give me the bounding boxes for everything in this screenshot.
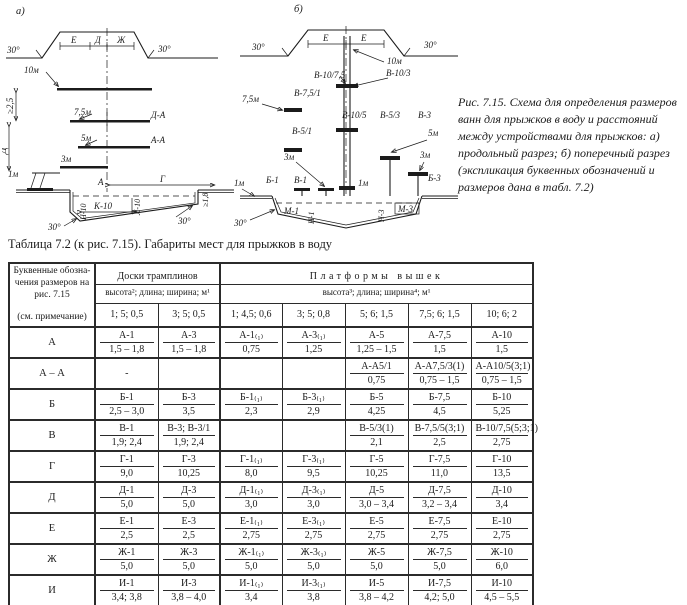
cell-designation: Г-7,5 (413, 452, 467, 467)
header-group-platforms: Платформы вышек высота³; длина; ширина⁴;… (220, 263, 533, 304)
dim-1m-label: 1м (234, 178, 245, 188)
table-cell: И-13,4; 3,8 (95, 575, 158, 605)
cell-designation: Ж-10 (476, 545, 529, 560)
table-cell: И-104,5 – 5,5 (471, 575, 533, 605)
table-cell: Ж-35,0 (158, 544, 220, 575)
table-cell: А-101,5 (471, 327, 533, 358)
figure-a-tag: а) (16, 6, 25, 17)
cell-value: 1,25 – 1,5 (346, 343, 408, 357)
cell-value: 5,0 (96, 560, 158, 574)
cell-value: 3,4 (472, 498, 533, 512)
size-col: 1; 4,5; 0,6 (220, 304, 282, 327)
cell-designation: А-10 (476, 328, 529, 343)
cell-designation: Б-3₍₁₎ (287, 390, 341, 405)
segment-e-label: Е (70, 35, 77, 45)
angle-label: 30° (233, 218, 247, 228)
cell-designation: И-7,5 (413, 576, 467, 591)
cell-designation: А-А5/1 (350, 359, 404, 374)
table-cell: Д-53,0 – 3,4 (345, 482, 408, 513)
cell-value: 5,0 (96, 498, 158, 512)
dim-1-8-label: ≥1,8 (201, 193, 210, 207)
scanned-page: а) 30° 30° Е Д Ж 10м ≥2,5 7,5м Д-А Д (0, 0, 687, 605)
cell-designation: А-7,5 (413, 328, 467, 343)
table-cell (220, 358, 282, 389)
cell-value: 2,1 (346, 436, 408, 450)
table-row: ВВ-11,9; 2,4В-3; В-3/11,9; 2,4В-5/3(1)2,… (9, 420, 533, 451)
angle-label: 30° (251, 42, 265, 52)
table-title: Таблица 7.2 (к рис. 7.15). Габариты мест… (8, 237, 332, 252)
cell-designation: Б-7,5 (413, 390, 467, 405)
table-cell: В-11,9; 2,4 (95, 420, 158, 451)
table-row: А – А-А-А5/10,75А-А7,5/3(1)0,75 – 1,5А-А… (9, 358, 533, 389)
table-cell (158, 358, 220, 389)
angle-label: 30° (6, 45, 20, 55)
cell-designation: Д-1₍₁₎ (225, 483, 278, 498)
cell-designation: Ж-3 (163, 545, 216, 560)
table-cell: Г-510,25 (345, 451, 408, 482)
cell-value: 9,0 (96, 467, 158, 481)
mark-n1-label: Н-1 (307, 212, 316, 225)
size-col: 1; 5; 0,5 (95, 304, 158, 327)
segment-zh-label: Ж (116, 35, 126, 45)
table-cell: Б-54,25 (345, 389, 408, 420)
cell-value: 2,75 (283, 529, 345, 543)
cell-value: 2,75 (346, 529, 408, 543)
cell-value: 4,5 (409, 405, 471, 419)
table-cell: В-5/3(1)2,1 (345, 420, 408, 451)
row-letter: Д (9, 482, 95, 513)
figure-b-drawing: б) 30° 30° Е Е 10м В-10/7,5 В-10/3 7 (232, 0, 467, 234)
cell-value: 3,8 (283, 591, 345, 605)
cell-designation: Е-10 (476, 514, 529, 529)
cell-value: 1,5 – 1,8 (96, 343, 158, 357)
cell-designation: В-3; В-3/1 (163, 421, 216, 436)
cell-value: 5,0 (346, 560, 408, 574)
group-springboards-title: Доски трамплинов (96, 268, 219, 285)
cell-value: 4,2; 5,0 (409, 591, 471, 605)
table-cell: Д-15,0 (95, 482, 158, 513)
dim-3m-label: 3м (283, 152, 295, 162)
cell-value: 13,5 (472, 467, 533, 481)
size-col: 3; 5; 0,5 (158, 304, 220, 327)
cell-designation: В-10/7,5(5;3;1) (476, 421, 529, 436)
cell-designation: Б-5 (350, 390, 404, 405)
cell-designation: Ж-1 (100, 545, 154, 560)
cell-designation: А-1₍₁₎ (225, 328, 278, 343)
table-cell: И-1₍₁₎3,4 (220, 575, 282, 605)
segment-e-label: Е (360, 33, 367, 43)
table-cell: Г-3₍₁₎9,5 (282, 451, 345, 482)
table-7-2: Буквенные обозна-чения размеров на рис. … (8, 262, 534, 605)
cell-designation: Д-7,5 (413, 483, 467, 498)
cell-value: 0,75 – 1,5 (409, 374, 471, 388)
dim-1m-label: 1м (8, 169, 19, 179)
dim-2-5-label: ≥2,5 (5, 97, 15, 114)
cell-value: 2,75 (409, 529, 471, 543)
mark-v10-75-label: В-10/7,5 (314, 70, 346, 80)
figure-caption: Рис. 7.15. Схема для определения размеро… (458, 94, 685, 196)
cell-value: 2,5 (96, 529, 158, 543)
cell-designation: Ж-1₍₁₎ (225, 545, 278, 560)
table-cell: Б-33,5 (158, 389, 220, 420)
cell-value: 11,0 (409, 467, 471, 481)
cell-value: 9,5 (283, 467, 345, 481)
header-designation: Буквенные обозна-чения размеров на рис. … (9, 263, 95, 327)
table-cell: Д-7,53,2 – 3,4 (408, 482, 471, 513)
row-letter: Б (9, 389, 95, 420)
table-cell: Б-3₍₁₎2,9 (282, 389, 345, 420)
cell-designation: А-3₍₁₎ (287, 328, 341, 343)
table-cell: Б-1₍₁₎2,3 (220, 389, 282, 420)
table-cell: Е-52,75 (345, 513, 408, 544)
table-cell: А-А5/10,75 (345, 358, 408, 389)
table-row: ДД-15,0Д-35,0Д-1₍₁₎3,0Д-3₍₁₎3,0Д-53,0 – … (9, 482, 533, 513)
table-row: ГГ-19,0Г-310,25Г-1₍₁₎8,0Г-3₍₁₎9,5Г-510,2… (9, 451, 533, 482)
cell-designation: Е-1 (100, 514, 154, 529)
table-cell: И-33,8 – 4,0 (158, 575, 220, 605)
table-cell: Д-1₍₁₎3,0 (220, 482, 282, 513)
mark-v10-5-label: В-10/5 (342, 110, 367, 120)
table-cell: В-10/7,5(5;3;1)2,75 (471, 420, 533, 451)
row-letter: А (9, 327, 95, 358)
dim-3m-label: 3м (60, 154, 72, 164)
cell-designation: Д-10 (476, 483, 529, 498)
table-cell: И-53,8 – 4,2 (345, 575, 408, 605)
cell-value: 4,25 (346, 405, 408, 419)
table-cell (220, 420, 282, 451)
row-letter: В (9, 420, 95, 451)
group-platforms-subtitle: высота³; длина; ширина⁴; м¹ (221, 285, 532, 300)
table-cell: Ж-15,0 (95, 544, 158, 575)
cell-value: 5,0 (221, 560, 282, 574)
table-cell: А-3₍₁₎1,25 (282, 327, 345, 358)
mark-n10-label: Н-10 (79, 204, 88, 221)
cell-designation: Г-10 (476, 452, 529, 467)
cell-designation: Д-5 (350, 483, 404, 498)
cell-value: 6,0 (472, 560, 533, 574)
size-col: 3; 5; 0,8 (282, 304, 345, 327)
figure-b-tag: б) (294, 4, 303, 15)
dim-10m-label: 10м (387, 56, 402, 66)
table-cell: Г-19,0 (95, 451, 158, 482)
table-row: ИИ-13,4; 3,8И-33,8 – 4,0И-1₍₁₎3,4И-3₍₁₎3… (9, 575, 533, 605)
cell-designation: Б-3 (163, 390, 216, 405)
table-cell: Г-7,511,0 (408, 451, 471, 482)
table-cell: Б-105,25 (471, 389, 533, 420)
row-letter: Г (9, 451, 95, 482)
cell-value: 3,0 – 3,4 (346, 498, 408, 512)
mark-l10-label: Л-10 (133, 199, 142, 216)
cell-value: 3,2 – 3,4 (409, 498, 471, 512)
cell-designation: И-3 (163, 576, 216, 591)
cell-designation: Ж-3₍₁₎ (287, 545, 341, 560)
cell-designation: Е-3 (163, 514, 216, 529)
cell-value: 3,8 – 4,2 (346, 591, 408, 605)
cell-value: 0,75 (346, 374, 408, 388)
mark-aa-label: А-А (150, 135, 165, 145)
cell-designation: Б-10 (476, 390, 529, 405)
cell-designation: И-10 (476, 576, 529, 591)
cell-designation: А-5 (350, 328, 404, 343)
angle-label: 30° (47, 222, 61, 232)
cell-designation: И-1₍₁₎ (225, 576, 278, 591)
cell-value: 8,0 (221, 467, 282, 481)
mark-b3-label: Б-3 (427, 173, 441, 183)
table-cell: В-7,5/5(3;1)2,5 (408, 420, 471, 451)
cell-value: 1,5 (472, 343, 533, 357)
table-cell: А-51,25 – 1,5 (345, 327, 408, 358)
cell-value: 3,4; 3,8 (96, 591, 158, 605)
cell-designation: Е-7,5 (413, 514, 467, 529)
table-cell: А-11,5 – 1,8 (95, 327, 158, 358)
angle-label: 30° (157, 44, 171, 54)
table-cell: Г-310,25 (158, 451, 220, 482)
table-row: ЕЕ-12,5Е-32,5Е-1₍₁₎2,75Е-3₍₁₎2,75Е-52,75… (9, 513, 533, 544)
table-cell: Е-3₍₁₎2,75 (282, 513, 345, 544)
cell-value: 2,9 (283, 405, 345, 419)
ceiling-profile (6, 32, 218, 58)
segment-e-label: Е (322, 33, 329, 43)
cell-value: 2,75 (472, 529, 533, 543)
table-cell: Г-1₍₁₎8,0 (220, 451, 282, 482)
cell-designation: Г-5 (350, 452, 404, 467)
table-cell: Ж-55,0 (345, 544, 408, 575)
table-cell: А-А7,5/3(1)0,75 – 1,5 (408, 358, 471, 389)
cell-value: 0,75 – 1,5 (472, 374, 533, 388)
dim-5m-label: 5м (81, 133, 92, 143)
cell-value: 5,0 (159, 498, 220, 512)
cell-designation: И-3₍₁₎ (287, 576, 341, 591)
cell-designation: И-5 (350, 576, 404, 591)
header-group-springboards: Доски трамплинов высота²; длина; ширина;… (95, 263, 220, 304)
mark-v7-5-1-label: В-7,5/1 (294, 88, 321, 98)
cell-value: 5,0 (159, 560, 220, 574)
cell-designation: А-3 (163, 328, 216, 343)
cell-designation: А-1 (100, 328, 154, 343)
cell-value: 10,25 (346, 467, 408, 481)
table-cell: Б-12,5 – 3,0 (95, 389, 158, 420)
table-cell: Е-7,52,75 (408, 513, 471, 544)
segment-d-label: Д (94, 35, 102, 45)
cell-value: - (96, 363, 158, 384)
cell-designation: В-5/3(1) (350, 421, 404, 436)
cell-value: 2,5 (159, 529, 220, 543)
cell-value: 1,25 (283, 343, 345, 357)
row-letter: Е (9, 513, 95, 544)
table-cell: Е-32,5 (158, 513, 220, 544)
cell-value: 2,3 (221, 405, 282, 419)
mark-k10-label: К-10 (93, 201, 112, 211)
cell-value: 10,25 (159, 467, 220, 481)
table-cell: Ж-1₍₁₎5,0 (220, 544, 282, 575)
group-platforms-title: Платформы вышек (221, 268, 532, 285)
mark-v5-1-label: В-5/1 (292, 126, 312, 136)
table-cell: А-А10/5(3;1)0,75 – 1,5 (471, 358, 533, 389)
mark-b1-label: Б-1 (265, 175, 279, 185)
cell-value: 4,5 – 5,5 (472, 591, 533, 605)
cell-value: 3,8 – 4,0 (159, 591, 220, 605)
cell-value: 1,5 – 1,8 (159, 343, 220, 357)
row-letter: И (9, 575, 95, 605)
table-cell: В-3; В-3/11,9; 2,4 (158, 420, 220, 451)
cell-designation: Г-3 (163, 452, 216, 467)
cell-value: 1,9; 2,4 (159, 436, 220, 450)
cell-value: 2,5 – 3,0 (96, 405, 158, 419)
table-cell (282, 420, 345, 451)
table-cell: Г-1013,5 (471, 451, 533, 482)
mark-v3-label: В-3 (418, 110, 431, 120)
table-cell: Д-103,4 (471, 482, 533, 513)
cell-designation: Д-3₍₁₎ (287, 483, 341, 498)
table-row: АА-11,5 – 1,8А-31,5 – 1,8А-1₍₁₎0,75А-3₍₁… (9, 327, 533, 358)
cell-designation: Г-3₍₁₎ (287, 452, 341, 467)
cell-designation: В-7,5/5(3;1) (413, 421, 467, 436)
table-cell: Ж-106,0 (471, 544, 533, 575)
row-letter: Ж (9, 544, 95, 575)
table-cell: Б-7,54,5 (408, 389, 471, 420)
cell-value: 3,0 (221, 498, 282, 512)
table-cell: Е-1₍₁₎2,75 (220, 513, 282, 544)
dim-3m-label: 3м (419, 150, 431, 160)
dim-5m-label: 5м (428, 128, 439, 138)
cell-value: 0,75 (221, 343, 282, 357)
mark-m3-label: М-3 (397, 204, 413, 214)
header-designation-text: Буквенные обозна-чения размеров на рис. … (13, 266, 91, 302)
axis-d-label: Д (2, 146, 9, 155)
mark-m1-label: М-1 (283, 206, 299, 216)
mark-v10-3-label: В-10/3 (386, 68, 411, 78)
cell-designation: Ж-7,5 (413, 545, 467, 560)
row-letter: А – А (9, 358, 95, 389)
table-row: ЖЖ-15,0Ж-35,0Ж-1₍₁₎5,0Ж-3₍₁₎5,0Ж-55,0Ж-7… (9, 544, 533, 575)
cell-designation: Е-3₍₁₎ (287, 514, 341, 529)
table-cell: Д-3₍₁₎3,0 (282, 482, 345, 513)
cell-designation: Г-1₍₁₎ (225, 452, 278, 467)
cell-designation: Ж-5 (350, 545, 404, 560)
table-cell: - (95, 358, 158, 389)
cell-designation: А-А7,5/3(1) (413, 359, 467, 374)
table-row: ББ-12,5 – 3,0Б-33,5Б-1₍₁₎2,3Б-3₍₁₎2,9Б-5… (9, 389, 533, 420)
table-cell: И-7,54,2; 5,0 (408, 575, 471, 605)
angle-label: 30° (423, 40, 437, 50)
table-cell: И-3₍₁₎3,8 (282, 575, 345, 605)
mark-a-label: А (97, 177, 104, 187)
size-col: 7,5; 6; 1,5 (408, 304, 471, 327)
mark-v5-3-label: В-5/3 (380, 110, 400, 120)
figure-a-drawing: а) 30° 30° Е Д Ж 10м ≥2,5 7,5м Д-А Д (2, 2, 237, 234)
header-designation-note: (см. примечание) (13, 312, 91, 324)
mark-da-label: Д-А (150, 110, 166, 120)
table-cell: Ж-3₍₁₎5,0 (282, 544, 345, 575)
dim-1m-label: 1м (358, 178, 369, 188)
table-cell: А-1₍₁₎0,75 (220, 327, 282, 358)
cell-designation: Е-1₍₁₎ (225, 514, 278, 529)
angle-label: 30° (177, 216, 191, 226)
mark-g-label: Г (159, 174, 166, 184)
cell-value: 2,75 (472, 436, 533, 450)
cell-value: 5,0 (283, 560, 345, 574)
cell-designation: И-1 (100, 576, 154, 591)
cell-designation: Д-3 (163, 483, 216, 498)
cell-value: 1,5 (409, 343, 471, 357)
cell-value: 3,4 (221, 591, 282, 605)
table-cell (282, 358, 345, 389)
dim-10m-label: 10м (24, 65, 39, 75)
table-cell: Е-12,5 (95, 513, 158, 544)
cell-designation: Г-1 (100, 452, 154, 467)
group-springboards-subtitle: высота²; длина; ширина; м¹ (96, 285, 219, 300)
table-cell: Е-102,75 (471, 513, 533, 544)
table-cell: Д-35,0 (158, 482, 220, 513)
size-col: 10; 6; 2 (471, 304, 533, 327)
cell-value: 3,0 (283, 498, 345, 512)
table-cell: Ж-7,55,0 (408, 544, 471, 575)
cell-designation: Б-1₍₁₎ (225, 390, 278, 405)
cell-value: 2,75 (221, 529, 282, 543)
cell-value: 3,5 (159, 405, 220, 419)
cell-designation: В-1 (100, 421, 154, 436)
mark-n3-label: Н-3 (377, 210, 386, 223)
table-cell: А-31,5 – 1,8 (158, 327, 220, 358)
cell-designation: Е-5 (350, 514, 404, 529)
cell-value: 1,9; 2,4 (96, 436, 158, 450)
cell-designation: А-А10/5(3;1) (476, 359, 529, 374)
cell-designation: Б-1 (100, 390, 154, 405)
cell-designation: Д-1 (100, 483, 154, 498)
cell-value: 5,0 (409, 560, 471, 574)
cell-value: 2,5 (409, 436, 471, 450)
size-col: 5; 6; 1,5 (345, 304, 408, 327)
mark-v1-label: В-1 (294, 175, 307, 185)
table-cell: А-7,51,5 (408, 327, 471, 358)
dim-7-5m-label: 7,5м (242, 94, 259, 104)
cell-value: 5,25 (472, 405, 533, 419)
